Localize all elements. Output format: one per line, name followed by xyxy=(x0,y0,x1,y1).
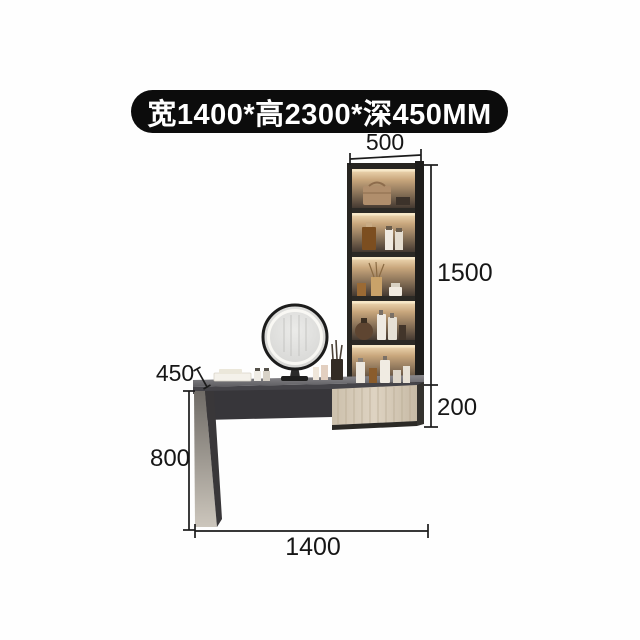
cabinet-shelf-compartment-1 xyxy=(352,169,415,208)
drawer-front xyxy=(332,385,417,425)
dimension-shelf-width: 500 xyxy=(350,129,421,165)
shelf-board xyxy=(352,208,415,213)
dimension-drawer-height: 200 xyxy=(424,385,477,427)
paper-stack xyxy=(214,369,251,381)
drawer-unit xyxy=(332,382,424,430)
table-apron xyxy=(198,389,332,420)
cabinet-shelf-compartment-3 xyxy=(352,257,415,296)
drawer-side-panel xyxy=(417,382,424,426)
drawer-height-label: 200 xyxy=(437,394,477,421)
cabinet-right-panel xyxy=(415,161,424,387)
dimension-leg-height: 800 xyxy=(150,391,195,530)
cabinet-shelf-compartment-4 xyxy=(352,301,415,340)
shelf-height-label: 1500 xyxy=(437,259,493,287)
mirror-base xyxy=(281,376,308,381)
leg-height-label: 800 xyxy=(150,445,190,472)
mirror-frame xyxy=(263,305,327,369)
brush-cup xyxy=(331,340,343,380)
total-width-label: 1400 xyxy=(285,533,341,561)
shelf-board xyxy=(352,252,415,257)
dimension-shelf-height: 1500 xyxy=(424,165,493,385)
dimension-total-width: 1400 xyxy=(195,524,428,561)
cabinet-shelf-compartment-2 xyxy=(352,213,415,252)
desk-depth-label: 450 xyxy=(156,360,194,386)
product-diagram: 500 1500 200 450 800 1400 xyxy=(0,0,640,640)
shelf-width-label: 500 xyxy=(366,129,404,155)
shelf-board xyxy=(352,340,415,345)
shelf-cabinet xyxy=(347,161,424,388)
shelf-board xyxy=(352,296,415,301)
